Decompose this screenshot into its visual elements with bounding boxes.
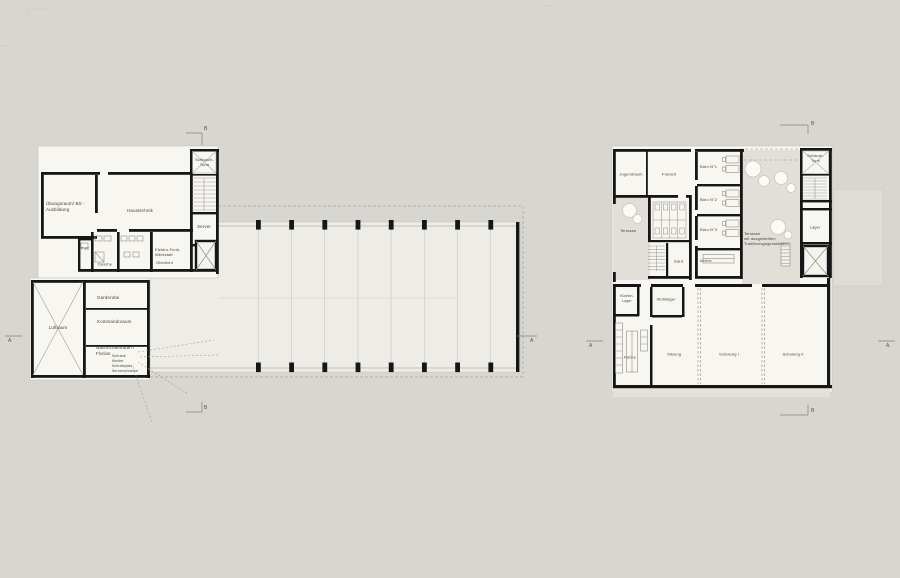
elevator-icon [196,241,216,270]
crop-marks [0,6,554,46]
room-label-schulung-2: Schulung II [782,351,803,356]
room-label-kuechen-lager: Küchen- Lager [620,294,634,304]
room-label-gard: Gard. [674,258,685,263]
elevator-icon-right [803,246,828,276]
room-label-buero-2: Büro N°2 [700,197,717,202]
right-plan-group [586,125,895,415]
room-label-archiv: Archiv [700,258,712,263]
room-label-oberlicht: Oberlicht [156,260,173,265]
left-plan-group [5,133,537,422]
section-marker-a-right-left-plan: A [530,338,533,344]
room-label-dusche: Dusche [98,261,112,266]
section-marker-b-top-left-plan: B [204,126,207,132]
room-label-schlauchturm-left: Schlauch- Turm [195,157,214,167]
room-label-stuhllager: Stuhllager [656,296,675,301]
room-label-nachrichten-details: Schrank Kleider Schreibplatz Serverschrä… [112,354,138,374]
section-marker-b-top-right-plan: B [811,121,814,127]
floorplan-linework-svg [0,0,900,578]
room-label-buero-3: Büro N°3 [700,227,717,232]
room-label-freizeit: Freizeit [662,171,676,176]
room-label-schlauchturm-right: Schlauch- Turm [807,154,823,164]
section-marker-b-bottom-left-plan: B [204,405,207,411]
room-label-schulung-1: Schulung I [719,351,739,356]
section-marker-a-left-left-plan: A [8,338,11,344]
exterior-strip [613,388,830,397]
section-marker-b-bottom-right-plan: B [811,408,814,414]
room-label-garderobe: Garderobe [97,295,119,301]
room-label-terrasse-mitte: Terrasse mit ausgestellten Traditionsgeg… [744,231,789,247]
room-label-elektro-werkstatt: Elektro-Funk- Werkstatt [155,247,180,257]
section-marker-a-right-right-plan: A [886,343,889,349]
room-label-haustechnik: Haustechnik [127,208,153,214]
room-label-lager: Lager [810,224,821,229]
room-label-server: Server [197,224,211,230]
room-label-luftraum: Luftraum [49,325,68,331]
section-marker-a-left-right-plan: A [589,343,592,349]
room-label-putz: Putz [81,245,89,250]
room-label-kommandoraum: Kommandoraum [97,319,131,325]
architectural-drawing-canvas: Übungsraum/ BS - Ausbildung Haustechnik … [0,0,900,578]
room-label-buero-1: Büro N°1 [700,164,717,169]
room-label-jugendraum: Jugendraum [619,171,642,176]
exterior-panel [833,189,883,286]
room-label-kueche: Küche [624,354,636,359]
room-label-sitzung: Sitzung [667,351,681,356]
room-label-uebungsraum: Übungsraum/ BS - Ausbildung [46,201,85,213]
room-label-terrasse-left: Terrasse [620,228,636,233]
